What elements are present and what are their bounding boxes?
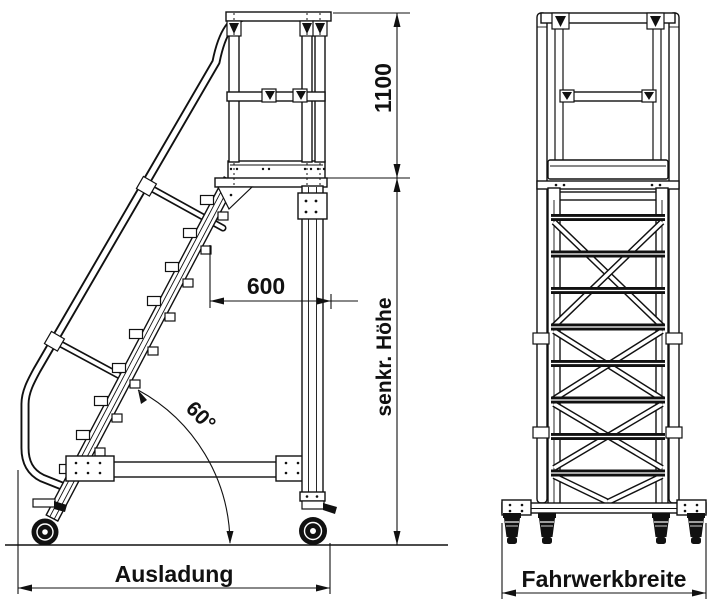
steps-front (551, 214, 665, 477)
mobile-platform-stairs-drawing: 60° 1100 senkr. Höhe 600 Ausladung (0, 0, 718, 600)
dim-label-1100: 1100 (370, 63, 396, 113)
front-knee-rail (561, 92, 655, 101)
rear-leg (298, 186, 327, 501)
dim-platform-depth: 600 (210, 245, 358, 309)
platform-front (548, 160, 668, 179)
tie-bar-clamp-plate (66, 456, 114, 481)
caster-front-inner-right (652, 513, 670, 544)
dim-vertical-height: senkr. Höhe (373, 178, 401, 545)
tie-bar (66, 456, 322, 481)
front-view (502, 13, 706, 544)
technical-drawing-page: 60° 1100 senkr. Höhe 600 Ausladung (0, 0, 718, 600)
inner-post-left (555, 15, 563, 162)
rear-caster (299, 501, 337, 545)
top-rail (226, 12, 331, 21)
caster-front-outer-right (687, 513, 705, 544)
leg-connector-block (298, 193, 327, 219)
platform-guardrail-side (226, 12, 331, 162)
caster-front-inner-left (538, 513, 556, 544)
dim-guardrail-height: 1100 (327, 13, 410, 178)
dim-label-600: 600 (247, 273, 285, 299)
dim-label-fahrwerkbreite: Fahrwerkbreite (522, 566, 687, 592)
inner-post-right (653, 15, 661, 162)
front-caster (32, 499, 68, 546)
dim-chassis-width: Fahrwerkbreite (502, 523, 706, 599)
caster-front-outer-left (503, 513, 521, 544)
dim-label-ausladung: Ausladung (115, 561, 234, 587)
dim-label-senkr-hoehe: senkr. Höhe (373, 297, 396, 416)
